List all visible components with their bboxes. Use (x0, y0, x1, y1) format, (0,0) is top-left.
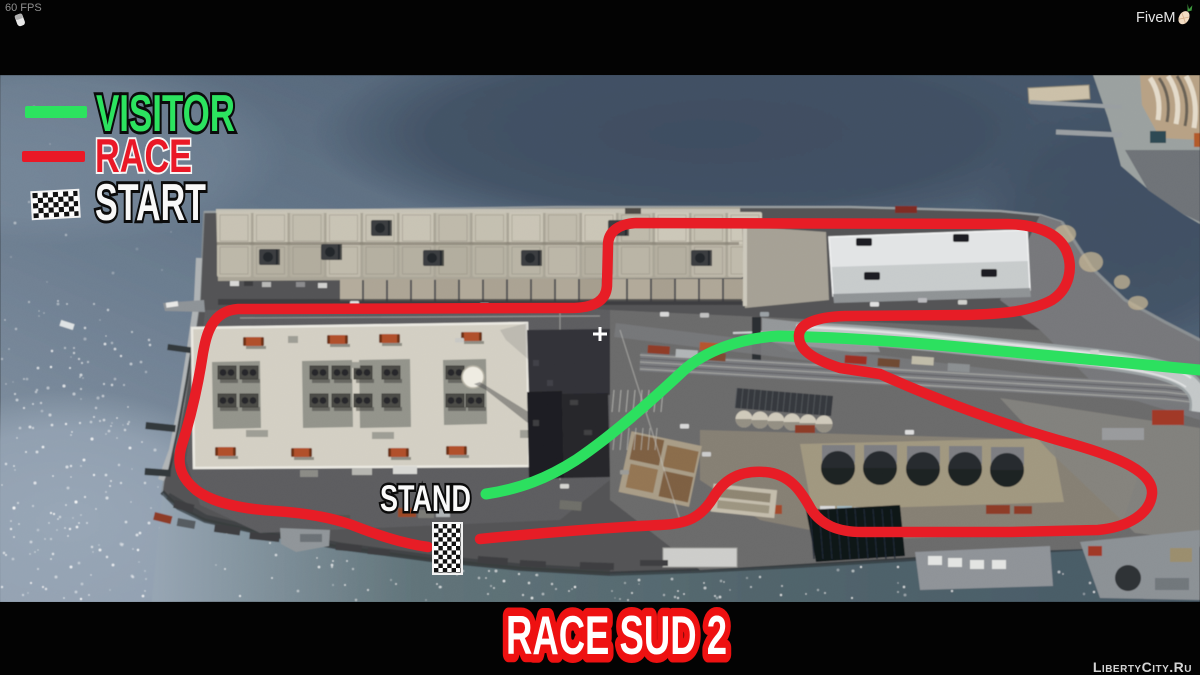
svg-text:RACE SUD 2: RACE SUD 2 (506, 604, 727, 666)
svg-text:START: START (95, 174, 206, 232)
svg-text:STAND: STAND (380, 478, 471, 519)
svg-text:FiveM: FiveM (1136, 10, 1175, 26)
svg-text:LibertyCity.Ru: LibertyCity.Ru (1093, 659, 1192, 675)
svg-text:60 FPS: 60 FPS (5, 2, 42, 14)
